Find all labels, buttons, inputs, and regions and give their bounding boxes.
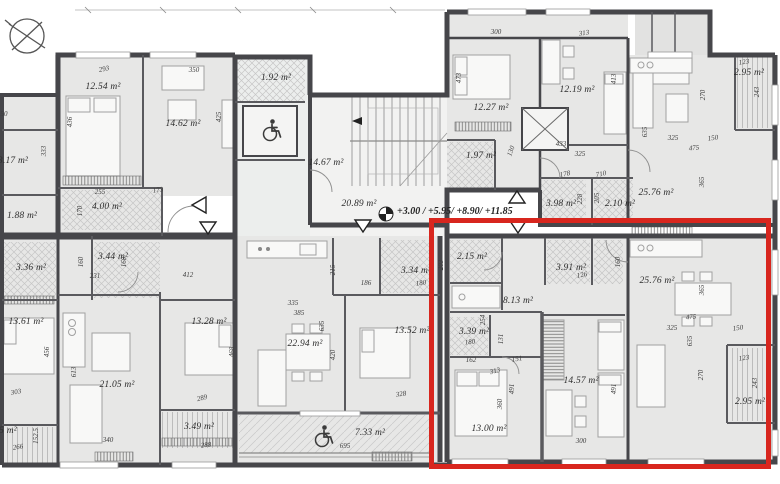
level-datum-icon bbox=[379, 207, 393, 221]
floor-plan-canvas[interactable]: 12.54 m²14.62 m²1.92 m²14.67 m²20.89 m²1… bbox=[0, 0, 780, 484]
north-compass-icon bbox=[5, 19, 45, 53]
floor-levels-annotation: +3.00 / +5.95/ +8.90/ +11.85 bbox=[397, 206, 513, 217]
selected-apartment-highlight[interactable] bbox=[429, 218, 771, 469]
